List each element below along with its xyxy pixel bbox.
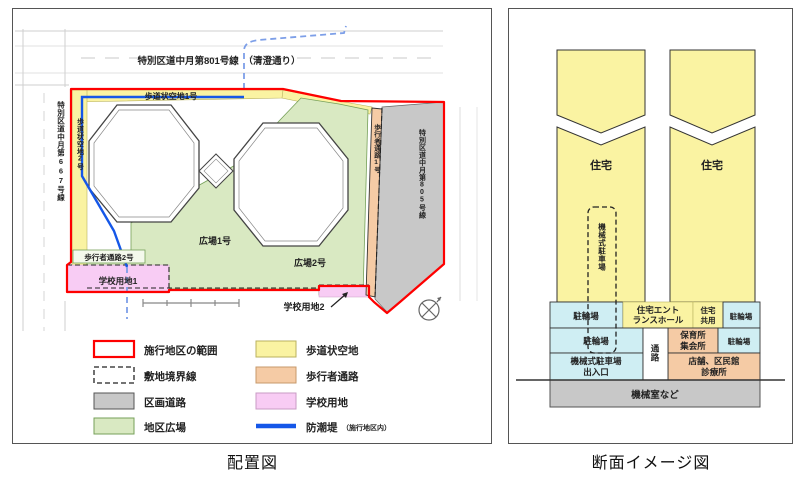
section-panel: 住宅 住宅 機械式駐車場 駐輪場 住宅エント ランスホール 住宅 共用 駐輪場 … [508,8,793,444]
label-nursery-line1: 保育所 [679,330,706,340]
site-plan-panel: 特別区道中月第801号線 （清澄通り） 歩道状空地1号 特別区道中月第667号線… [12,8,492,444]
legend-label-school-site: 学校用地 [306,396,348,409]
legend-label-site-boundary: 敷地境界線 [144,370,197,383]
building-2-outline [234,123,348,246]
label-corridor: 通路 [650,343,660,362]
legend-label-pedestrian-path: 歩行者通路 [306,370,359,383]
label-tower-left: 住宅 [590,158,612,172]
label-mechanical-parking-shaft: 機械式駐車場 [597,222,606,272]
label-bicycle-4: 駐輪場 [728,336,751,346]
legend-swatch-district-road [94,393,134,409]
legend-swatch-site-boundary [94,367,134,383]
label-tower-right: 住宅 [701,158,723,172]
label-plaza-2: 広場2号 [294,257,326,268]
label-road-left: 特別区道中月第667号線 [56,100,65,203]
scale-bar [143,299,239,307]
label-road-top: 特別区道中月第801号線 （清澄通り） [137,55,300,67]
legend-swatch-school-site [256,393,296,409]
legend-note-tide-embankment: （施行地区内） [342,423,391,432]
legend: 施行地区の範囲 敷地境界線 区画道路 地区広場 歩道状空地 歩行者通路 学校用地… [94,341,391,434]
legend-swatch-district-plaza [94,418,134,434]
site-plan-drawing: 特別区道中月第801号線 （清澄通り） 歩道状空地1号 特別区道中月第667号線… [13,9,491,443]
legend-swatch-pedestrian-path [256,367,296,383]
label-housing-common-line1: 住宅 [701,305,716,315]
legend-swatch-sidewalk [256,341,296,357]
tower-right [670,50,755,302]
building-1-outline [89,105,199,222]
sidewalk-strip-2-area [72,90,87,266]
label-school-2: 学校用地2 [283,301,324,312]
legend-label-district-plaza: 地区広場 [144,421,186,434]
label-parking-entrance-line2: 出入口 [583,367,609,377]
district-road-area [375,102,444,312]
label-bicycle-1: 駐輪場 [573,311,599,321]
label-entrance-line2: ランスホール [633,315,684,325]
section-drawing: 住宅 住宅 機械式駐車場 駐輪場 住宅エント ランスホール 住宅 共用 駐輪場 … [509,9,792,443]
label-plaza-1: 広場1号 [199,235,231,246]
label-bicycle-3: 駐輪場 [583,336,609,346]
label-machine-room: 機械室など [631,389,679,401]
label-school-1: 学校用地1 [99,276,138,286]
label-path-2: 歩行者通路2号 [84,252,134,262]
label-nursery-line2: 集会所 [679,341,706,351]
label-bicycle-2: 駐輪場 [730,311,753,321]
label-entrance-line1: 住宅エント [637,305,680,315]
site-plan-caption: 配置図 [12,449,493,473]
label-sidewalk-1: 歩道状空地1号 [145,91,197,101]
label-housing-common-line2: 共用 [701,315,716,325]
section-caption: 断面イメージ図 [508,449,794,473]
legend-swatch-project-area [94,341,134,357]
label-shops-line2: 診療所 [701,367,727,377]
legend-label-tide-embankment: 防潮堤 [306,421,338,434]
compass-icon [419,297,441,320]
label-shops-line1: 店舗、区民館 [687,356,740,366]
legend-label-sidewalk: 歩道状空地 [306,344,359,357]
label-parking-entrance-line1: 機械式駐車場 [570,356,622,366]
label-sidewalk-2: 歩道状空地2号 [76,117,84,171]
legend-label-district-road: 区画道路 [144,396,186,409]
legend-label-project-area: 施行地区の範囲 [144,344,218,357]
